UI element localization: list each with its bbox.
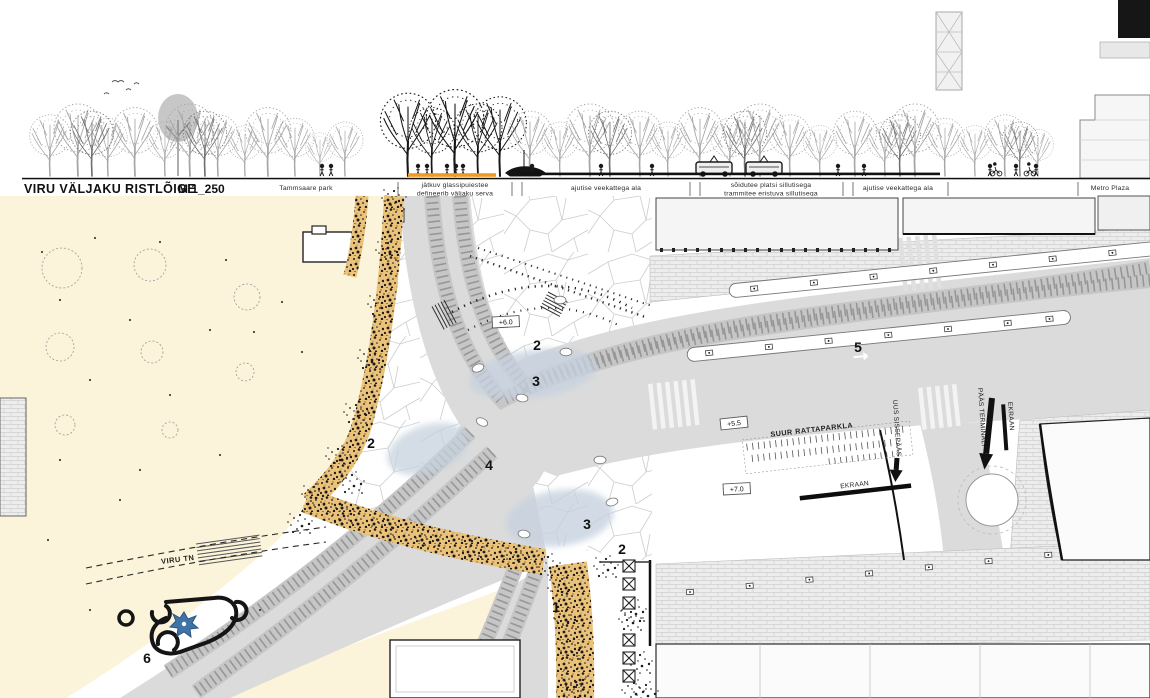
xbox-icon	[623, 670, 635, 682]
park-dot	[209, 329, 211, 331]
tree-icon	[542, 122, 578, 176]
level-badge-screen: +7.0	[723, 483, 751, 495]
area-marker: 4	[485, 457, 493, 473]
section-title: VIRU VÄLJAKU RISTLÕIGE	[24, 181, 196, 196]
person-icon	[1014, 164, 1018, 176]
cyclist-icon	[1024, 163, 1036, 176]
park-dot	[94, 237, 96, 239]
park-dot	[89, 379, 91, 381]
tree-icon	[1022, 129, 1053, 176]
building-park-pavilion	[303, 232, 355, 262]
building-corner	[1098, 196, 1150, 230]
round-plaza	[966, 474, 1018, 526]
site-drawing: VIRU VÄLJAKU RISTLÕIGE M 1_250 Tammsaare…	[0, 0, 1150, 698]
building-arcade	[656, 198, 898, 250]
building-bottom-right	[656, 644, 1150, 698]
xbox-icon	[623, 578, 635, 590]
section-label-allee-1: jätkuv glassipuiestee	[421, 182, 489, 189]
section-dark-ground-bar	[520, 173, 940, 176]
park-dot	[119, 499, 121, 501]
paver-left-edge	[0, 398, 26, 516]
tree-icon	[958, 126, 992, 176]
person-icon	[320, 164, 324, 176]
park-dot	[47, 539, 49, 541]
stone-icon	[560, 348, 572, 356]
tree-icon	[30, 115, 71, 176]
tree-icon	[891, 104, 939, 176]
park-dot	[169, 394, 171, 396]
park-dot	[41, 251, 43, 253]
tree-icon	[474, 97, 527, 176]
metro-plaza-building-elevation	[1080, 0, 1150, 178]
area-marker: 2	[533, 337, 541, 353]
area-marker: 6	[143, 650, 151, 666]
park-dot	[259, 609, 261, 611]
park-dot	[281, 301, 283, 303]
level-badge-bike: +5.5	[720, 416, 748, 430]
xbox-icon	[623, 652, 635, 664]
construction-tower-icon	[936, 12, 962, 90]
svg-text:+6.0: +6.0	[499, 319, 513, 327]
building-south	[390, 640, 520, 698]
tower-block	[1118, 0, 1150, 38]
section-label-water-2: ajutise veekattega ala	[863, 185, 933, 192]
park-dot	[225, 259, 227, 261]
elevation-ground-line	[22, 178, 1150, 180]
scale-label: M 1_250	[178, 182, 225, 196]
park-dot	[301, 351, 303, 353]
tree-icon	[588, 111, 631, 176]
building-north	[903, 198, 1095, 234]
area-marker: 3	[532, 373, 540, 389]
section-label-water-1: ajutise veekattega ala	[571, 185, 641, 192]
section-labels: Tammsaare park jätkuv glassipuiestee def…	[279, 182, 1129, 198]
level-badge-plaza: +6.0	[492, 316, 520, 328]
park-dot	[59, 299, 61, 301]
park-dot	[253, 331, 255, 333]
cyclist-icon	[990, 163, 1002, 176]
svg-text:+5.5: +5.5	[727, 420, 742, 428]
stone-icon	[554, 296, 566, 304]
park-dot	[159, 241, 161, 243]
person-icon	[329, 164, 333, 176]
stone-icon	[594, 456, 606, 464]
area-marker: 2	[367, 435, 375, 451]
area-marker: 2	[618, 541, 626, 557]
area-marker: 3	[583, 516, 591, 532]
tree-icon	[426, 90, 484, 176]
tree-icon	[803, 126, 837, 176]
xbox-icon	[623, 597, 635, 609]
park-dot	[59, 459, 61, 461]
tree-icon	[327, 122, 363, 176]
area-marker: 1	[552, 599, 560, 615]
park-dot	[139, 469, 141, 471]
park-dot	[219, 454, 221, 456]
tree-icon	[867, 122, 903, 176]
section-elevation: VIRU VÄLJAKU RISTLÕIGE M 1_250 Tammsaare…	[22, 0, 1150, 198]
section-label-metro-plaza: Metro Plaza	[1091, 185, 1129, 192]
tree-icon	[276, 118, 314, 176]
site-plan: VIRU TN SUUR RATTAPARKLA	[0, 187, 1150, 698]
area-marker: 5	[854, 339, 862, 355]
xbox-icon	[623, 634, 635, 646]
svg-text:+7.0: +7.0	[730, 486, 744, 494]
section-highlight-orange	[408, 173, 496, 177]
birds-icon	[104, 81, 139, 95]
section-label-road-1: sõidutee platsi sillutisega	[731, 182, 812, 189]
section-label-park: Tammsaare park	[279, 185, 333, 192]
urban-plan-sheet: VIRU VÄLJAKU RISTLÕIGE M 1_250 Tammsaare…	[0, 0, 1150, 698]
park-dot	[89, 609, 91, 611]
xbox-icon	[623, 560, 635, 572]
park-dot	[129, 319, 131, 321]
